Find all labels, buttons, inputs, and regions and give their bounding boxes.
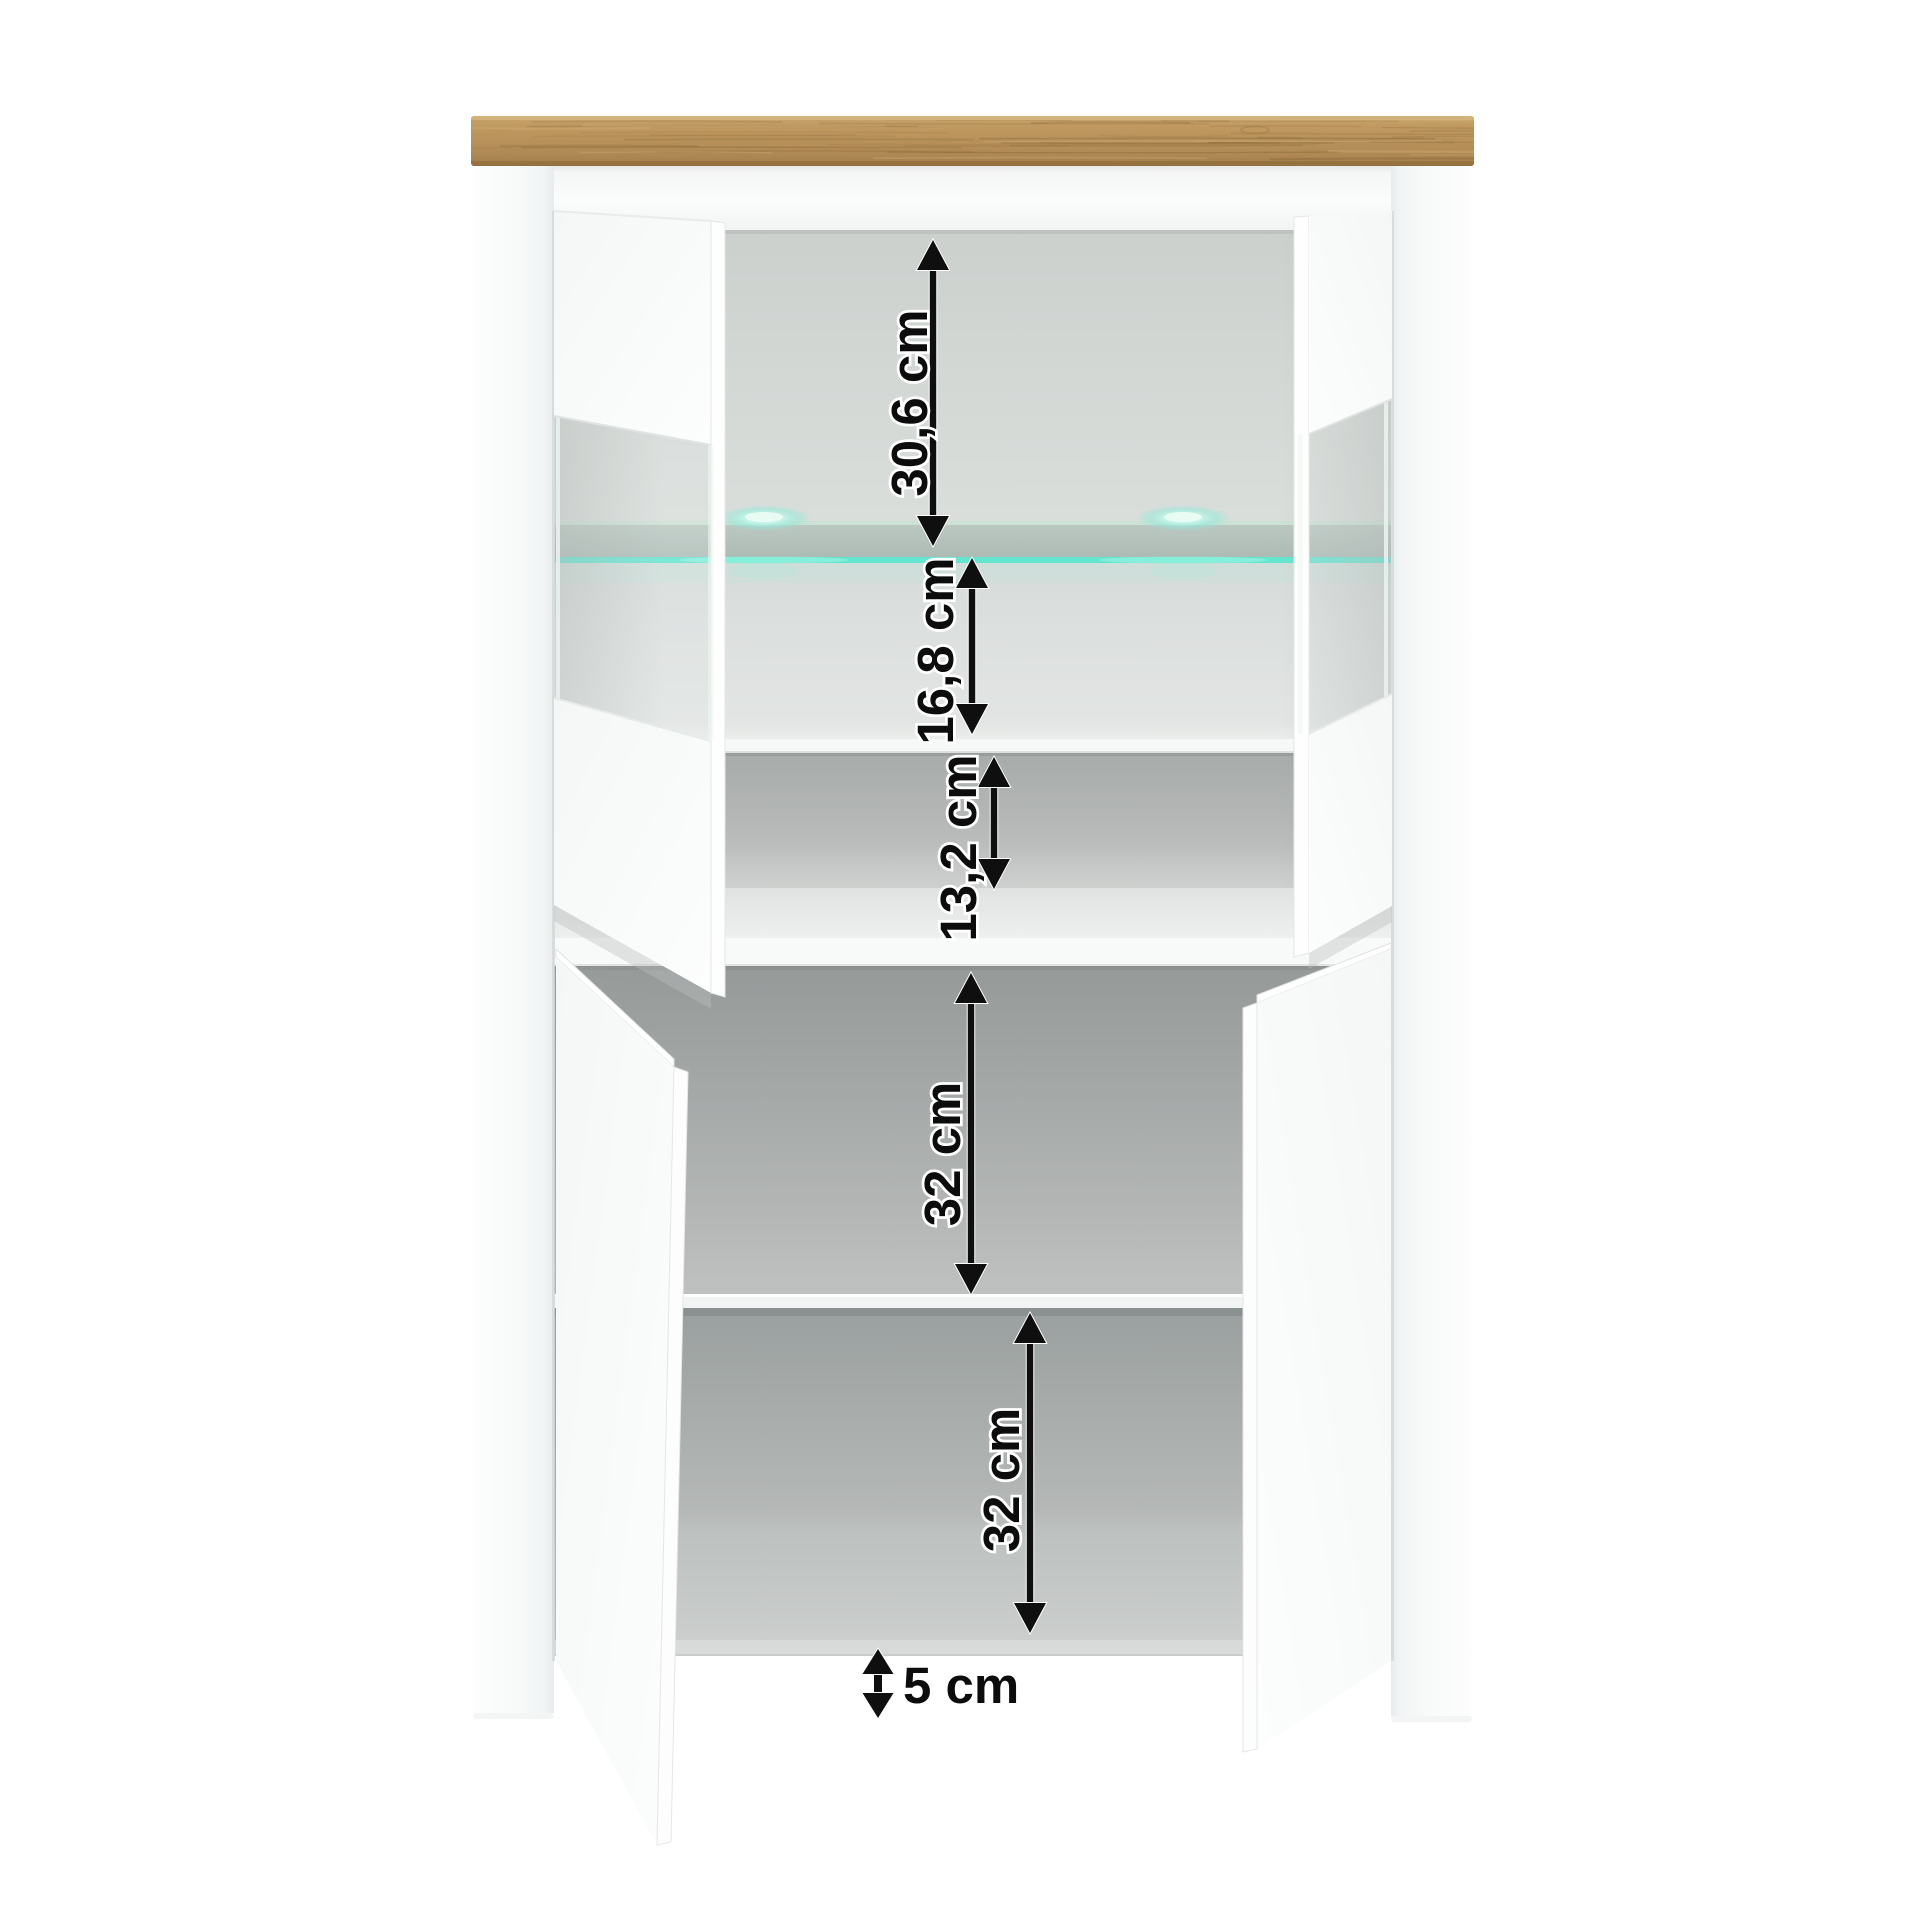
svg-text:32 cm: 32 cm bbox=[973, 1408, 1030, 1553]
svg-text:13,2 cm: 13,2 cm bbox=[930, 754, 987, 941]
svg-text:16,8 cm: 16,8 cm bbox=[907, 557, 964, 744]
svg-text:30,6 cm: 30,6 cm bbox=[881, 309, 938, 496]
svg-text:5 cm: 5 cm bbox=[903, 1657, 1019, 1714]
svg-text:32 cm: 32 cm bbox=[914, 1082, 971, 1227]
